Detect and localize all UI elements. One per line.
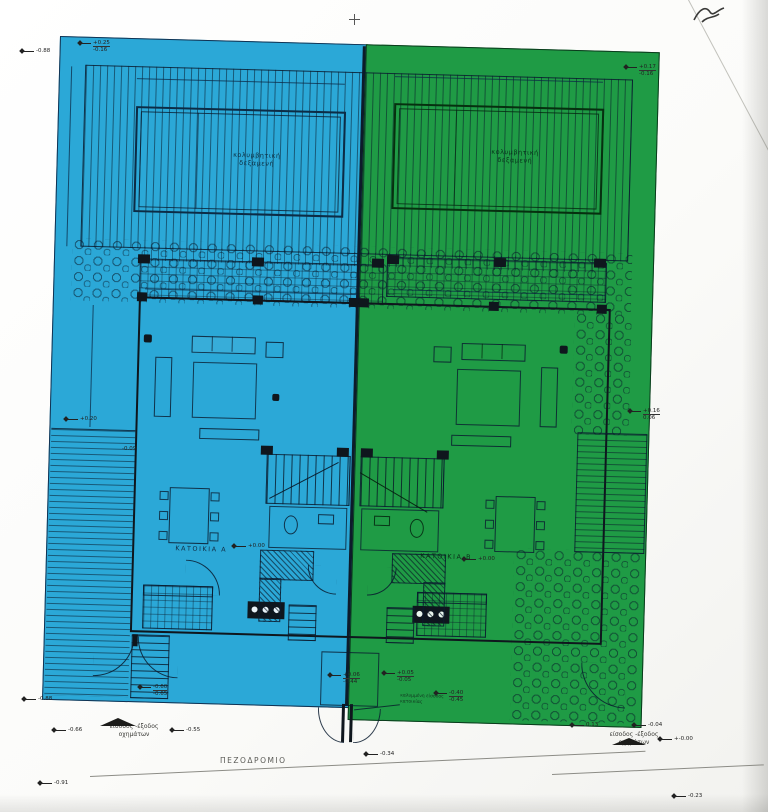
column <box>597 305 607 314</box>
pen-scribble <box>692 4 726 26</box>
chair <box>535 541 544 550</box>
elevation-marker: +0.25 -0.16 <box>80 40 110 53</box>
elevation-marker: -0.91 <box>40 780 68 786</box>
elevation-marker: -0.60 -0.65 <box>140 684 167 697</box>
street-edge-line <box>552 764 764 775</box>
elevation-marker: +0.00 <box>234 543 265 549</box>
sofa <box>461 343 525 362</box>
pool-a: κολυμβητική δεξαμενή <box>133 106 346 218</box>
elevation-marker: 0.13 <box>572 722 598 728</box>
rug <box>456 369 521 427</box>
chair <box>536 521 545 530</box>
toilet <box>284 515 299 534</box>
elevation-marker: -0.40 -0.45 <box>436 690 463 703</box>
gate-post <box>341 704 345 742</box>
elevation-marker: +-0.00 <box>660 736 693 742</box>
elevation-marker: +0.16 0.06 <box>630 408 660 421</box>
level-flag-icon <box>626 67 637 68</box>
chair <box>159 491 168 500</box>
elevation-marker: +0.00 <box>464 556 495 562</box>
column <box>361 448 373 457</box>
level-flag-icon <box>464 559 476 560</box>
chair <box>158 531 167 540</box>
level-flag-icon <box>674 796 686 797</box>
survey-cross-mark <box>349 14 360 25</box>
scan-shadow-right <box>742 0 768 812</box>
sidewalk-label: ΠΕΖΟΔΡΟΜΙΟ <box>220 756 287 765</box>
chair <box>484 540 493 549</box>
rug <box>192 362 257 420</box>
level-flag-icon <box>572 725 584 726</box>
level-flag-icon <box>234 546 246 547</box>
wc-a <box>268 506 347 550</box>
porch-steps-b <box>386 607 415 644</box>
column <box>349 298 359 307</box>
chair <box>159 511 168 520</box>
entry-wall-a <box>258 578 281 623</box>
column <box>437 450 449 459</box>
level-flag-icon <box>436 693 447 694</box>
gate-post <box>133 634 138 646</box>
level-flag-icon <box>22 51 34 52</box>
floor-plan-drawing: κολυμβητική δεξαμενή κολυμβητική δεξαμεν… <box>42 36 662 730</box>
level-flag-icon <box>80 43 91 44</box>
level-flag-icon <box>634 725 646 726</box>
wc-b <box>360 508 439 552</box>
level-flag-icon <box>54 730 66 731</box>
dim-text: -0.09 <box>122 446 136 452</box>
chair <box>210 512 219 521</box>
column <box>372 259 384 268</box>
chair <box>210 492 219 501</box>
scanned-paper: κολυμβητική δεξαμενή κολυμβητική δεξαμεν… <box>0 0 768 812</box>
terrace-b-stripes <box>574 432 647 554</box>
column <box>137 292 147 301</box>
gate-arrow <box>100 718 136 726</box>
column <box>253 295 263 304</box>
toilet <box>410 519 425 538</box>
basin <box>318 514 334 524</box>
level-flag-icon <box>40 783 52 784</box>
armchair <box>265 342 283 358</box>
elevation-marker: -0.23 <box>674 793 702 799</box>
column <box>387 255 399 264</box>
sofa <box>191 336 255 355</box>
tv-bench <box>451 435 511 448</box>
level-flag-icon <box>330 675 341 676</box>
pool-a-label: κολυμβητική δεξαμενή <box>197 150 317 169</box>
plant <box>144 334 152 342</box>
column <box>337 448 349 457</box>
scan-shadow-bottom <box>0 794 768 812</box>
pool-b-label: κολυμβητική δεξαμενή <box>455 147 575 166</box>
level-flag-icon <box>172 730 184 731</box>
porch-steps-a <box>288 604 317 641</box>
column <box>138 254 150 263</box>
column <box>594 259 606 268</box>
sofa <box>540 367 559 427</box>
elevation-marker: -0.34 <box>366 751 394 757</box>
level-flag-icon <box>384 673 395 674</box>
stair-b <box>359 456 444 508</box>
elevation-marker: -0.55 <box>172 727 200 733</box>
elevation-marker: +0.06 -0.44 <box>330 672 360 685</box>
tv-bench <box>199 428 259 441</box>
dining-table-b <box>494 496 536 553</box>
plant <box>560 346 568 354</box>
elevation-marker: -0.04 <box>634 722 662 728</box>
column <box>359 298 369 307</box>
elevation-marker: -0.88 <box>22 48 50 54</box>
elevation-marker: -0.66 <box>54 727 82 733</box>
level-flag-icon <box>66 419 78 420</box>
chair <box>485 520 494 529</box>
dining-table-a <box>168 487 210 544</box>
gate-arrow <box>612 738 646 745</box>
entry-wall-b <box>422 582 445 627</box>
column <box>261 446 273 455</box>
chair <box>485 500 494 509</box>
level-flag-icon <box>660 739 672 740</box>
plant <box>272 394 279 401</box>
level-flag-icon <box>140 687 151 688</box>
elevation-marker: +0.17 -0.16 <box>626 64 656 77</box>
level-flag-icon <box>630 411 641 412</box>
pool-b: κολυμβητική δεξαμενή <box>391 103 604 215</box>
level-flag-icon <box>366 754 378 755</box>
entry-ramp-a <box>259 550 314 581</box>
chair <box>536 501 545 510</box>
hob-ring <box>251 606 257 612</box>
column <box>489 302 499 311</box>
elevation-marker: +0.20 <box>66 416 97 422</box>
level-flag-icon <box>24 699 36 700</box>
scanned-floor-plan-page: { "labels": { "sidewalk": "ΠΕΖΟΔΡΟΜΙΟ", … <box>0 0 768 812</box>
armchair <box>433 346 451 362</box>
elevation-marker: +0.05 -0.05 <box>384 670 414 683</box>
basin <box>374 516 390 526</box>
column <box>494 258 506 267</box>
pedestrian-gate-swing <box>353 708 381 744</box>
sofa <box>154 357 173 417</box>
column <box>252 257 264 266</box>
elevation-marker: -0.88 <box>24 696 52 702</box>
chair <box>209 532 218 541</box>
